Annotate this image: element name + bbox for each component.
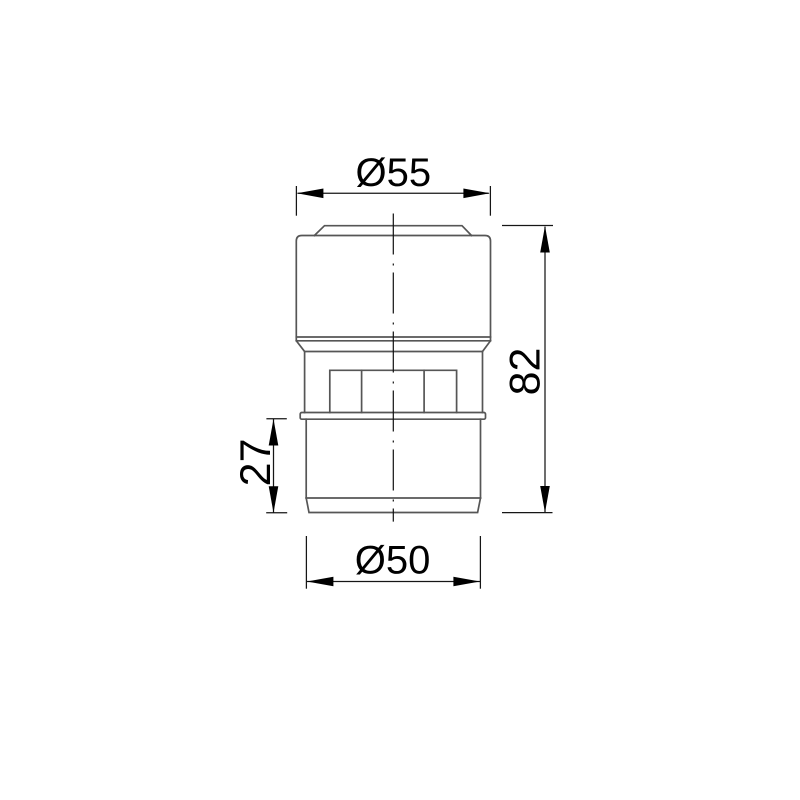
svg-text:Ø55: Ø55 — [355, 151, 431, 195]
svg-text:Ø50: Ø50 — [355, 538, 431, 582]
svg-text:27: 27 — [232, 438, 280, 486]
svg-text:82: 82 — [501, 348, 549, 396]
